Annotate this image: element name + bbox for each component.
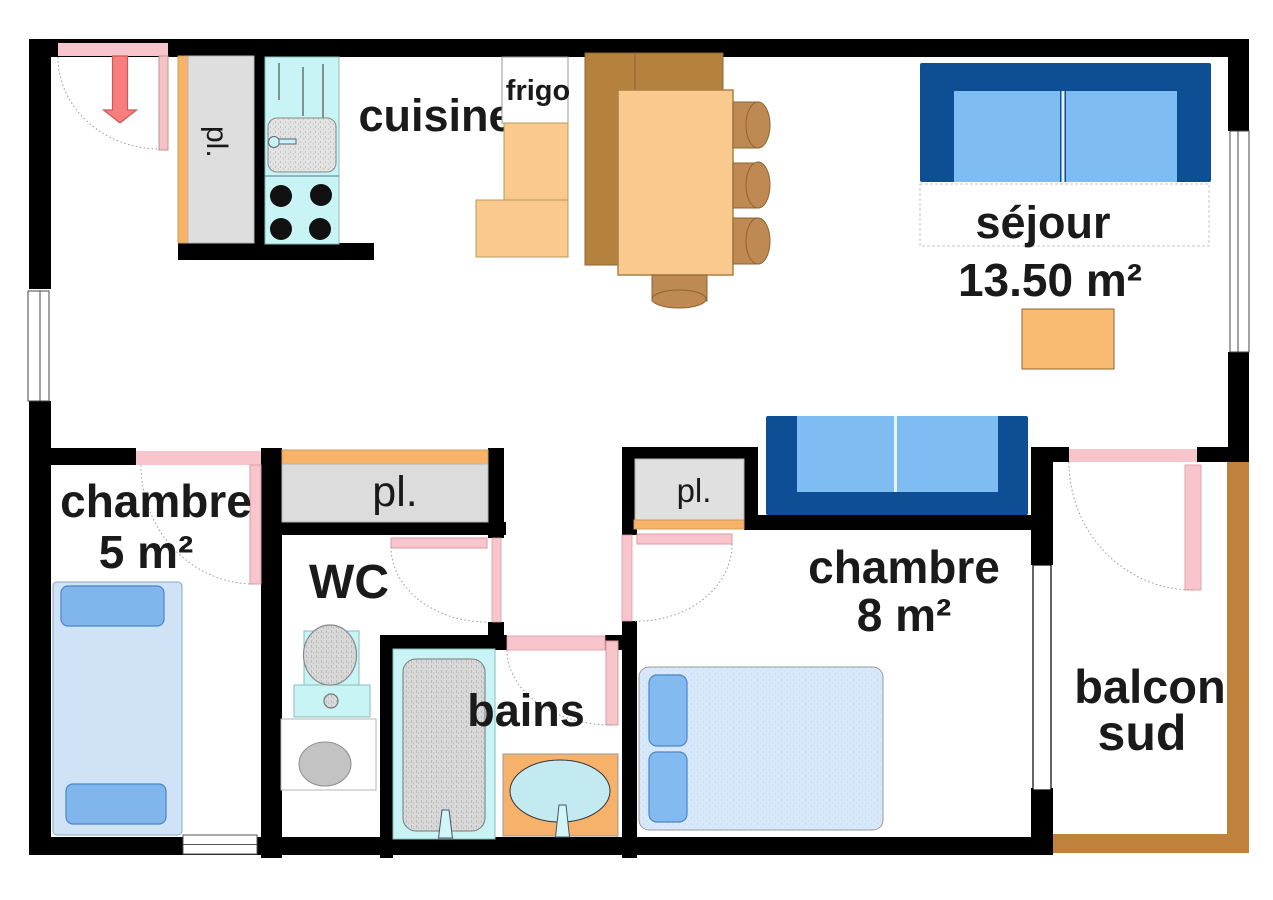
svg-text:chambre: chambre — [60, 475, 252, 527]
svg-text:WC: WC — [309, 556, 389, 609]
svg-text:cuisine: cuisine — [358, 90, 513, 141]
svg-text:séjour: séjour — [975, 197, 1110, 248]
svg-text:pl.: pl. — [200, 126, 233, 158]
svg-text:pl.: pl. — [372, 468, 417, 516]
svg-text:bains: bains — [467, 685, 585, 736]
svg-text:5 m²: 5 m² — [99, 526, 194, 578]
svg-text:sud: sud — [1098, 705, 1187, 761]
svg-text:frigo: frigo — [506, 75, 570, 107]
svg-text:chambre: chambre — [808, 541, 1000, 593]
svg-text:13.50 m²: 13.50 m² — [958, 254, 1142, 306]
svg-text:pl.: pl. — [677, 472, 712, 509]
svg-text:8 m²: 8 m² — [857, 589, 952, 641]
